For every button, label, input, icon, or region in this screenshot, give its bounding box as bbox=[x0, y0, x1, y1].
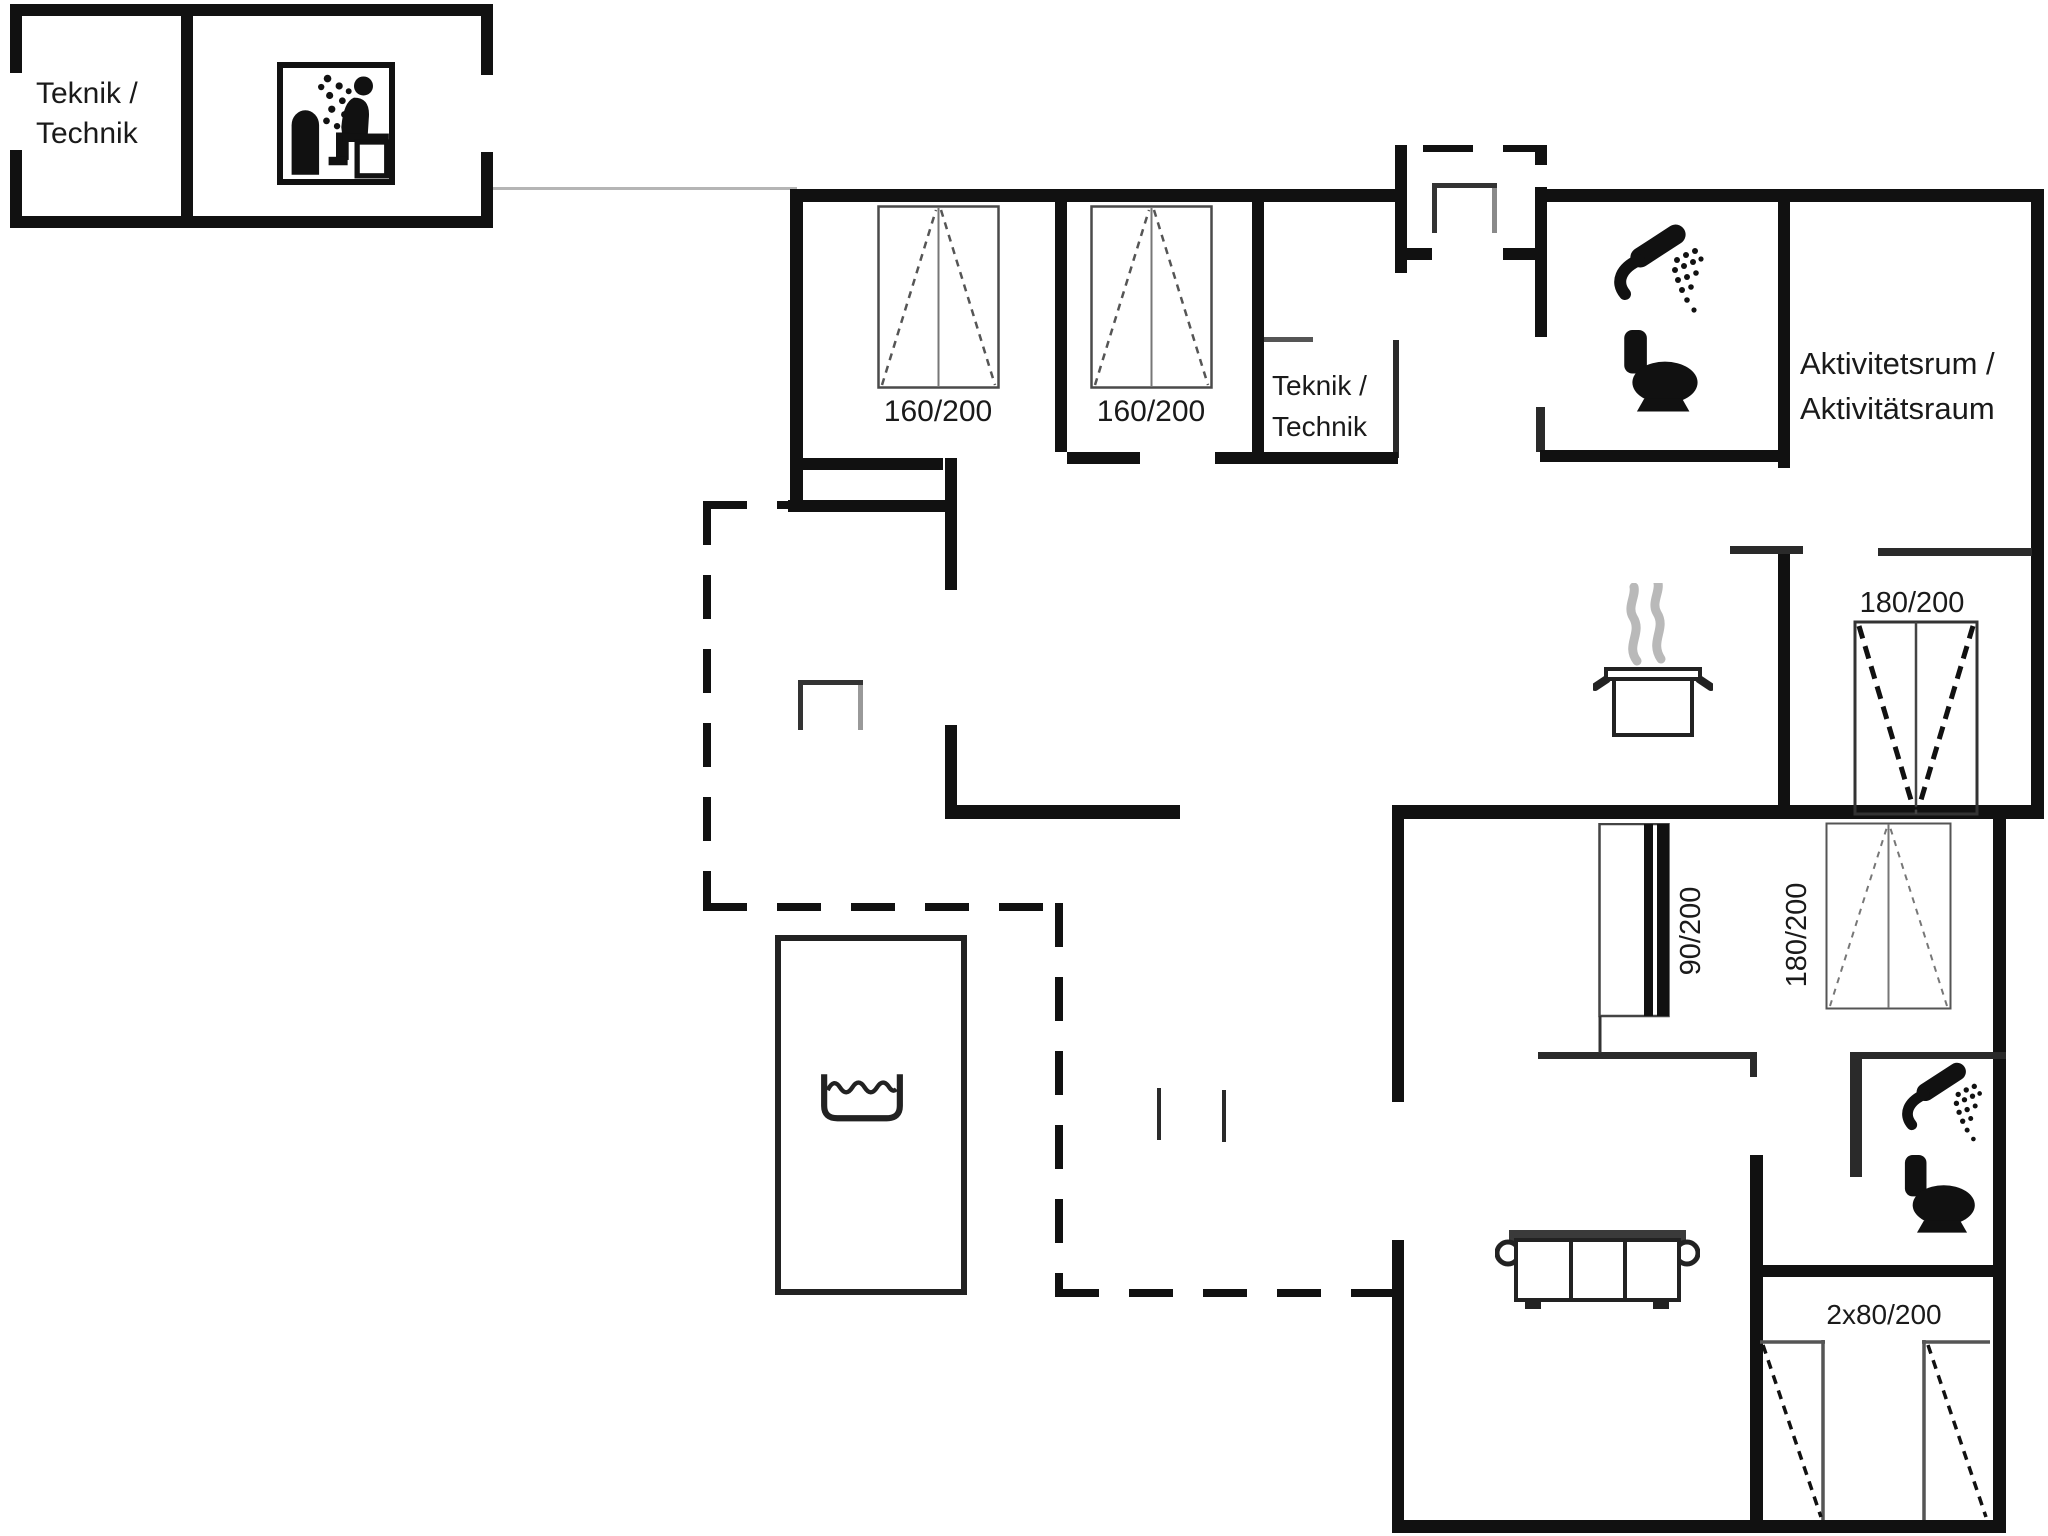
wall bbox=[1763, 1265, 2006, 1277]
wall bbox=[1392, 1520, 2006, 1533]
mark-line bbox=[1157, 1088, 1161, 1140]
bed-size-label: 180/200 bbox=[1860, 588, 1965, 618]
wall bbox=[1850, 1058, 1862, 1177]
wall bbox=[803, 458, 943, 470]
entrance-door-icon bbox=[1432, 183, 1497, 188]
bathtub-icon bbox=[818, 1072, 906, 1129]
wall bbox=[788, 500, 950, 512]
wall bbox=[1252, 202, 1264, 460]
terrace-dashed-line bbox=[1055, 903, 1063, 1297]
wall bbox=[1778, 202, 1790, 468]
floor-plan: Teknik /Technik bbox=[0, 0, 2048, 1536]
activity-room-label: Aktivitetsrum /Aktivitätsraum bbox=[1800, 341, 1995, 431]
wall bbox=[1215, 452, 1398, 464]
wall bbox=[1392, 805, 1404, 1102]
entrance-door-icon bbox=[1492, 188, 1497, 233]
wall bbox=[1878, 548, 2032, 556]
steam-icon bbox=[1631, 587, 1637, 661]
wall bbox=[945, 805, 1180, 819]
wall bbox=[1730, 546, 1803, 554]
cooking-pot-icon bbox=[1593, 583, 1713, 748]
toilet-icon bbox=[1616, 330, 1704, 421]
mark-line bbox=[1222, 1090, 1226, 1142]
outbuilding-teknik-line1: Teknik / bbox=[36, 77, 138, 110]
wall bbox=[1535, 187, 1547, 337]
bed-size-label: 160/200 bbox=[884, 396, 992, 428]
outbuilding-teknik-line2: Technik bbox=[36, 117, 138, 150]
shower-icon bbox=[1885, 1060, 1985, 1157]
wall bbox=[1067, 452, 1140, 464]
bed-symbol bbox=[1922, 1340, 1990, 1525]
bunk-bed-symbol bbox=[1598, 823, 1670, 1058]
sofa-icon bbox=[1495, 1226, 1700, 1326]
wall bbox=[1750, 1058, 1757, 1077]
teknik-room-line2: Technik bbox=[1272, 411, 1367, 442]
wall bbox=[1536, 407, 1545, 452]
wall bbox=[1535, 189, 2044, 202]
wall bbox=[945, 458, 957, 590]
wall bbox=[181, 4, 193, 228]
bed-size-label-rotated: 90/200 bbox=[1676, 887, 1706, 976]
wall bbox=[1055, 202, 1067, 452]
teknik-room-label: Teknik /Technik bbox=[1272, 365, 1367, 447]
wall bbox=[2031, 189, 2044, 819]
outbuilding-teknik-label: Teknik /Technik bbox=[36, 74, 138, 154]
wall bbox=[10, 216, 493, 228]
boundary-line bbox=[493, 187, 797, 190]
entrance-door-icon bbox=[1432, 188, 1437, 233]
bed-size-label: 2x80/200 bbox=[1826, 1300, 1941, 1329]
wall bbox=[1778, 547, 1790, 817]
door-jamb bbox=[1503, 248, 1547, 260]
bed-symbol bbox=[1853, 620, 1979, 821]
door-jamb bbox=[1395, 248, 1432, 260]
terrace-door-icon bbox=[798, 680, 863, 685]
terrace-door-icon bbox=[798, 685, 803, 730]
bed-size-label: 160/200 bbox=[1097, 396, 1205, 428]
terrace-door-icon bbox=[858, 685, 863, 730]
bed-size-label-rotated: 180/200 bbox=[1782, 883, 1812, 988]
wall bbox=[481, 152, 493, 228]
wall bbox=[481, 4, 493, 75]
terrace-dashed-line bbox=[703, 903, 1063, 911]
terrace-dashed-line bbox=[1055, 1289, 1398, 1297]
wall bbox=[10, 150, 22, 228]
shower-icon bbox=[1595, 222, 1707, 329]
wall bbox=[1850, 1052, 2006, 1059]
terrace-dashed-line bbox=[703, 501, 791, 509]
toilet-icon bbox=[1898, 1150, 1980, 1247]
steam-icon bbox=[1655, 583, 1661, 659]
sauna-icon bbox=[277, 62, 395, 185]
bed-symbol bbox=[1760, 1340, 1825, 1525]
activity-room-line2: Aktivitätsraum bbox=[1800, 391, 1995, 426]
activity-room-line1: Aktivitetsrum / bbox=[1800, 346, 1995, 381]
wall bbox=[790, 189, 803, 512]
terrace-dashed-line bbox=[703, 501, 711, 911]
shelf-line bbox=[1264, 337, 1313, 342]
bed-symbol bbox=[877, 205, 1000, 394]
teknik-room-line1: Teknik / bbox=[1272, 370, 1367, 401]
wall bbox=[10, 4, 493, 16]
wall bbox=[1993, 805, 2006, 1533]
bed-symbol bbox=[1825, 822, 1952, 1015]
wall bbox=[797, 189, 1395, 202]
porch-dash bbox=[1423, 145, 1473, 152]
bed-symbol bbox=[1090, 205, 1213, 394]
wall bbox=[1540, 450, 1790, 462]
wall bbox=[10, 4, 22, 73]
wall bbox=[1392, 1240, 1404, 1533]
wall bbox=[1393, 340, 1399, 458]
porch-wall bbox=[1535, 145, 1547, 165]
